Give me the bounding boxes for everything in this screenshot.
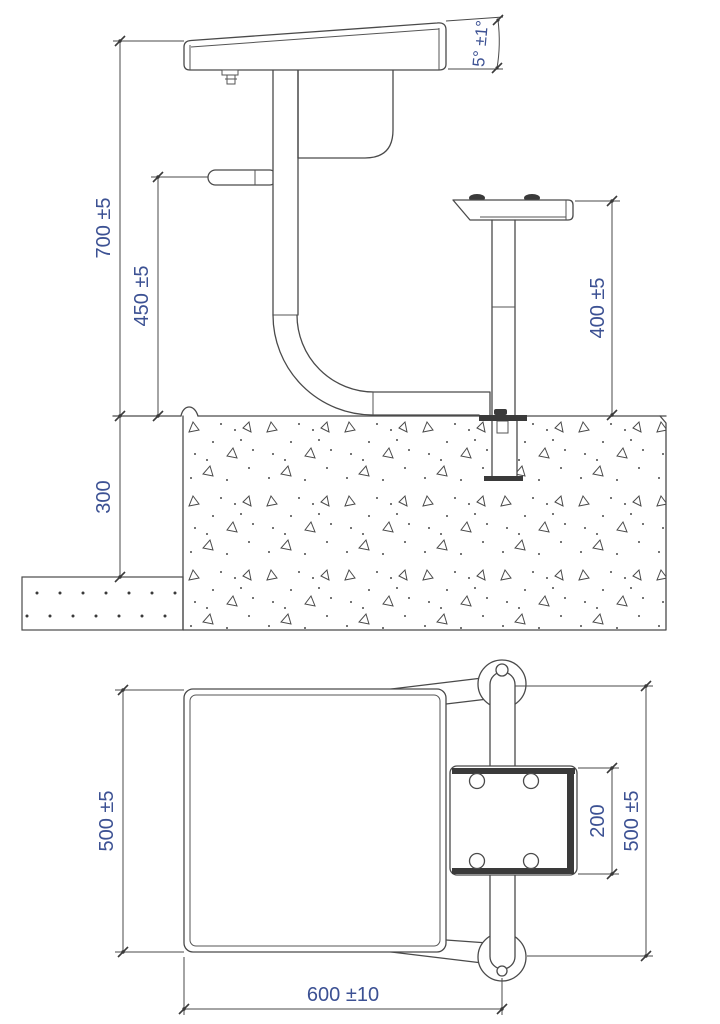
seat-plan (450, 766, 577, 875)
dim-700-label: 700 ±5 (93, 197, 115, 258)
desk-top-side (184, 23, 446, 70)
desk-top-plan (184, 689, 446, 952)
dim-700: 700 ±5 (93, 36, 184, 421)
dim-600-label: 600 ±10 (307, 984, 379, 1006)
subbase-layer (22, 577, 183, 630)
bag-hook (208, 170, 277, 185)
seat-bolt-icon (470, 854, 485, 869)
dim-200-label: 200 (587, 804, 609, 837)
dim-500-left-label: 500 ±5 (96, 790, 118, 851)
dim-500-right-label: 500 ±5 (621, 790, 643, 851)
support-leg (273, 70, 490, 415)
mounting-bolt-icon (222, 70, 238, 84)
dim-450-label: 450 ±5 (131, 265, 153, 326)
dim-450: 450 ±5 (131, 172, 208, 421)
dim-500-left: 500 ±5 (96, 685, 184, 957)
anchor-bolt-icon (496, 664, 508, 676)
plan-view: 500 ±5 200 500 ±5 600 ±10 (96, 660, 653, 1015)
dim-300-label: 300 (93, 480, 115, 513)
dim-angle-label: 5° ±1° (469, 20, 492, 68)
book-basket (298, 70, 393, 158)
side-elevation-view: 700 ±5 450 ±5 300 400 ±5 (22, 15, 666, 630)
desk-and-seat-drawing: 700 ±5 450 ±5 300 400 ±5 (0, 0, 720, 1024)
seat-bolt-icon (524, 774, 539, 789)
dim-400-label: 400 ±5 (587, 277, 609, 338)
seat-bolt-icon (470, 774, 485, 789)
dim-200: 200 (578, 763, 619, 879)
dim-400: 400 ±5 (575, 196, 620, 420)
seat-bolt-icon (524, 854, 539, 869)
dim-angle: 5° ±1° (446, 15, 503, 73)
anchor-bolt-icon (497, 966, 507, 976)
dim-300: 300 (93, 416, 125, 582)
dim-600: 600 ±10 (179, 957, 507, 1015)
seat-side (453, 194, 573, 220)
concrete-foundation (183, 416, 666, 630)
technical-drawing-page: 700 ±5 450 ±5 300 400 ±5 (0, 0, 720, 1024)
